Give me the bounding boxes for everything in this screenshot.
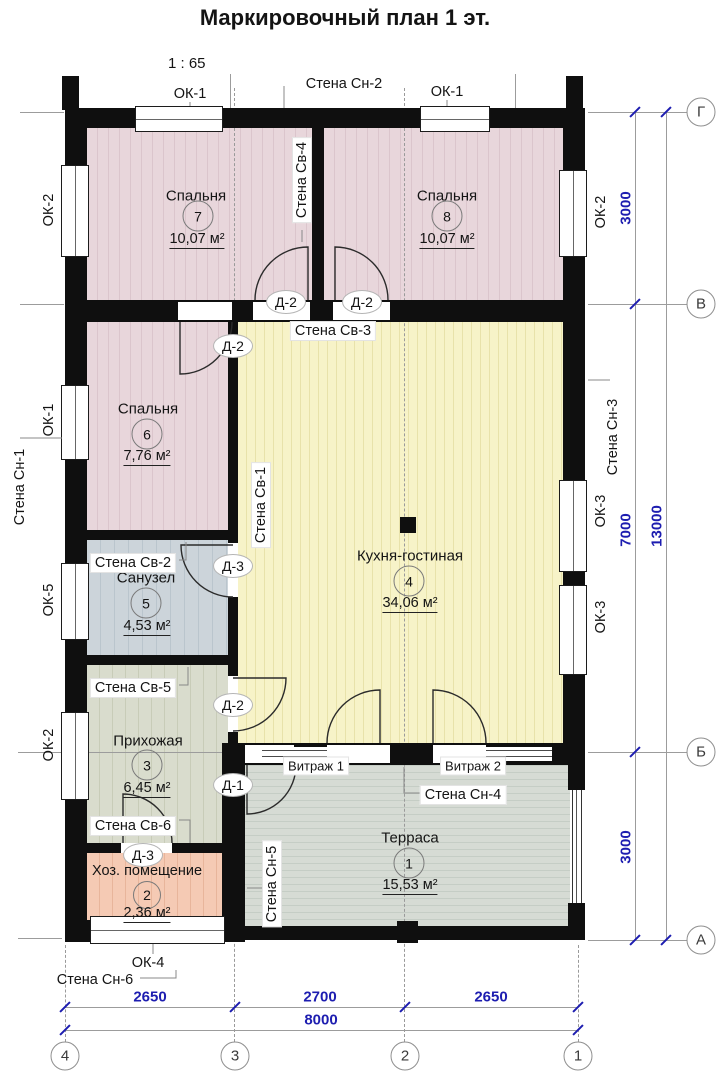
dim-line-right-outer: [666, 112, 667, 940]
window-ok3-right-2: [559, 585, 587, 675]
label-ok3-right-2: ОК-3: [593, 601, 609, 634]
window-ok2-left-bed7: [61, 165, 89, 257]
dim-bottom-2650-left: 2650: [133, 989, 166, 1006]
floor-plan-canvas: Маркировочный план 1 эт. 1 : 65: [0, 0, 721, 1080]
label-vitrage-2: Витраж 2: [440, 757, 506, 776]
label-ok1-top-right: ОК-1: [431, 84, 464, 100]
label-sn5-terrace: Стена Сн-5: [262, 841, 282, 928]
label-ok5-left: ОК-5: [41, 584, 57, 617]
room-bathroom-area: 4,53 м²: [123, 618, 170, 636]
room-bedroom-7-number: 7: [183, 201, 214, 232]
room-bedroom-6-number: 6: [132, 419, 163, 450]
door-tag-d1-terrace: Д-1: [213, 773, 253, 797]
axis-bubble-1: 1: [564, 1042, 593, 1071]
room-utility-area: 2,36 м²: [123, 905, 170, 923]
room-terrace-area: 15,53 м²: [382, 877, 437, 895]
column-kitchen: [400, 517, 416, 533]
wall-axis-v: [65, 300, 585, 322]
axis-g-extension-top2: [515, 74, 516, 108]
axis-g-stub-left: [20, 112, 64, 113]
wall-sv5-partition: [87, 655, 238, 665]
label-sn6-bottom: Стена Сн-6: [57, 972, 134, 988]
label-ok2-left-bottom: ОК-2: [41, 729, 57, 762]
axis-v-stub-left: [20, 304, 64, 305]
dim-right-3000-top: 3000: [618, 191, 635, 224]
dim-line-right-inner: [635, 112, 636, 940]
room-bathroom-number: 5: [131, 588, 162, 619]
label-sv4: Стена Св-4: [292, 137, 312, 223]
window-ok1-top-right: [420, 106, 490, 132]
label-sv2: Стена Св-2: [90, 553, 176, 573]
label-sv5: Стена Св-5: [90, 678, 176, 698]
room-terrace-name: Терраса: [381, 830, 439, 847]
axis-bubble-a: А: [687, 926, 716, 955]
window-ok3-right-1: [559, 480, 587, 572]
room-kitchen-name: Кухня-гостиная: [357, 548, 463, 565]
room-hallway-area: 6,45 м²: [123, 780, 170, 798]
dim-bottom-2700: 2700: [303, 989, 336, 1006]
room-bedroom-8-number: 8: [432, 201, 463, 232]
label-sv6: Стена Св-6: [90, 816, 176, 836]
axis-bubble-g: Г: [687, 98, 716, 127]
door-tag-d2-hall: Д-2: [213, 693, 253, 717]
terrace-post-top: [568, 765, 585, 790]
door-tag-d2-bed6: Д-2: [213, 334, 253, 358]
corner-post-top-right: [566, 76, 583, 110]
axis-g-line-right: [588, 112, 687, 113]
room-hallway-name: Прихожая: [113, 733, 183, 750]
door-tag-d3-utility: Д-3: [123, 843, 163, 867]
terrace-post-bottom: [568, 903, 585, 940]
axis-v-line-right: [588, 304, 687, 305]
label-sv3: Стена Св-3: [290, 321, 376, 341]
window-ok5-left-bath: [61, 563, 89, 640]
axis-bubble-v: В: [687, 290, 716, 319]
room-terrace-number: 1: [394, 848, 425, 879]
door-tag-d3-bath: Д-3: [213, 554, 253, 578]
room-kitchen-area: 34,06 м²: [382, 595, 437, 613]
label-ok3-right-1: ОК-3: [593, 495, 609, 528]
door-opening-bed6: [178, 302, 232, 320]
axis-a-stub-left: [18, 938, 62, 939]
room-bedroom-6-area: 7,76 м²: [123, 448, 170, 466]
wall-sv4-partition: [312, 127, 324, 300]
room-kitchen-number: 4: [394, 566, 425, 597]
label-sn3-right: Стена Сн-3: [605, 399, 621, 476]
label-ok1-left: ОК-1: [41, 404, 57, 437]
door-tag-d2-bed7: Д-2: [266, 290, 306, 314]
label-sn4: Стена Сн-4: [420, 785, 507, 805]
axis-bubble-4: 4: [51, 1042, 80, 1071]
axis-a-line-right: [588, 940, 687, 941]
window-ok2-right-bed8: [559, 170, 587, 257]
room-bedroom-8-area: 10,07 м²: [419, 231, 474, 249]
dim-right-7000: 7000: [618, 513, 635, 546]
dim-bottom-2650-right: 2650: [474, 989, 507, 1006]
label-ok2-left-top: ОК-2: [41, 194, 57, 227]
dim-line-bottom-outer: [65, 1030, 578, 1031]
corner-post-top-left: [62, 76, 79, 110]
window-ok1-top-left: [135, 106, 223, 132]
window-ok1-left-bed6: [61, 385, 89, 460]
column-terrace-bottom: [397, 921, 418, 943]
label-sn2-top: Стена Сн-2: [306, 76, 383, 92]
label-sn1-left: Стена Сн-1: [12, 449, 28, 526]
room-bedroom-6-name: Спальня: [118, 401, 178, 418]
wall-sv2-partition: [87, 530, 238, 540]
label-vitrage-1: Витраж 1: [283, 757, 349, 776]
axis-bubble-3: 3: [221, 1042, 250, 1071]
axis-b-line-right: [588, 752, 687, 753]
dim-right-3000-bottom: 3000: [618, 830, 635, 863]
dim-right-total-13000: 13000: [649, 505, 666, 547]
terrace-side-glazing: [572, 790, 582, 903]
axis-bubble-2: 2: [391, 1042, 420, 1071]
room-bedroom-7-area: 10,07 м²: [169, 231, 224, 249]
label-ok1-top-left: ОК-1: [174, 86, 207, 102]
label-sv1: Стена Св-1: [251, 462, 271, 548]
axis-g-extension-top: [230, 74, 231, 108]
dim-bottom-total-8000: 8000: [304, 1012, 337, 1029]
axis-bubble-b: Б: [687, 738, 716, 767]
dim-line-bottom-inner: [65, 1007, 578, 1008]
window-ok2-left-hall: [61, 712, 89, 800]
label-ok2-right: ОК-2: [593, 196, 609, 229]
door-tag-d2-bed8: Д-2: [342, 290, 382, 314]
label-ok4-bottom: ОК-4: [132, 955, 165, 971]
room-hallway-number: 3: [132, 750, 163, 781]
scale-label: 1 : 65: [168, 55, 206, 72]
page-title: Маркировочный план 1 эт.: [200, 5, 490, 31]
